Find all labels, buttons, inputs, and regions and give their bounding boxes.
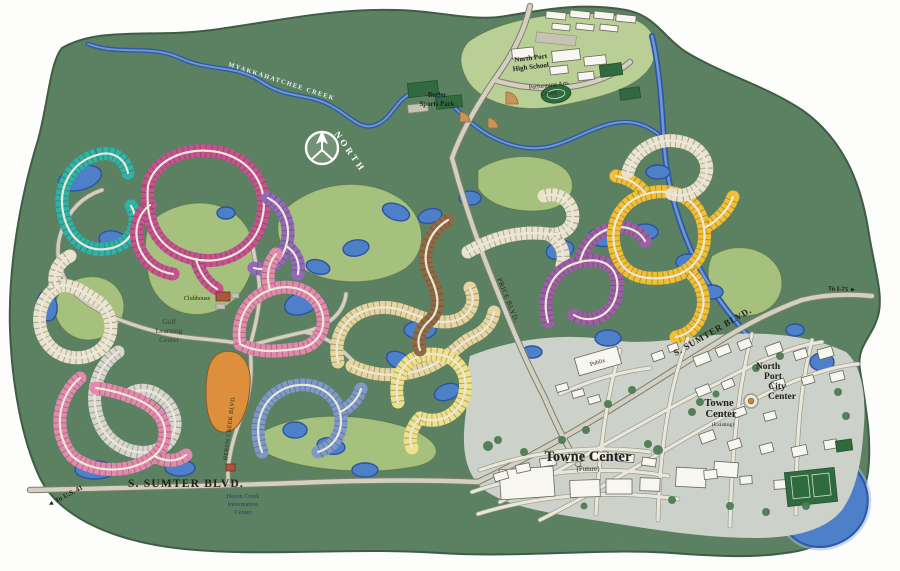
roundabout (744, 394, 758, 408)
towne-existing-label-1: Towne (704, 398, 734, 409)
city-center-label-2: Port (764, 372, 783, 382)
sumter-south-label: S. SUMTER BLVD. (128, 478, 244, 490)
master-plan-map: NORTH MYAKKAHATCHEE CREEK S. SUMTER BLVD… (0, 0, 900, 571)
golf-learning-label-1: Golf (162, 317, 176, 326)
towne-future-label-1: Towne Center (545, 449, 632, 465)
city-center-label-4: Center (768, 392, 797, 402)
map-canvas: NORTH MYAKKAHATCHEE CREEK S. SUMTER BLVD… (0, 0, 900, 571)
info-center-label-1: Heron Creek (227, 493, 261, 500)
golf-learning-label-3: Center (159, 335, 179, 344)
butler-label-1: Butler (428, 92, 447, 99)
golf-learning-label-2: Learning (156, 326, 183, 335)
city-center-label-1: North (756, 362, 781, 372)
butler-label-2: Sports Park (420, 101, 455, 108)
sports-field (619, 87, 640, 101)
towne-existing-label-3: (Existing) (712, 421, 735, 428)
sports-field (599, 63, 622, 78)
information-center-building (226, 464, 235, 471)
towne-future-label-2: (Future) (577, 465, 601, 473)
info-center-label-2: Information (228, 501, 259, 508)
to-i75-label: To I-75 ► (828, 285, 857, 293)
city-center-label-3: City (768, 382, 786, 392)
clubhouse-label: Clubhouse (184, 295, 211, 302)
towne-existing-label-2: Center (706, 409, 737, 420)
info-center-label-3: Center (234, 509, 252, 516)
